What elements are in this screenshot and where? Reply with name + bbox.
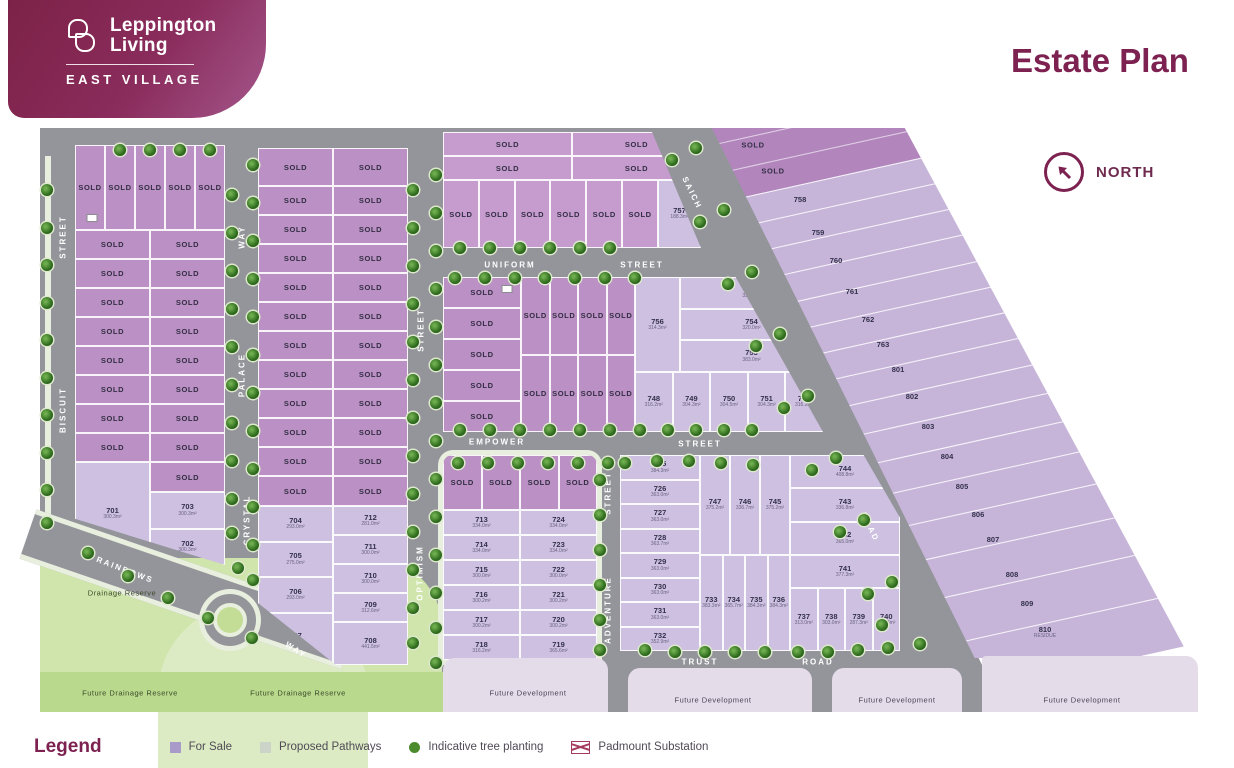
tree-icon [407, 564, 419, 576]
legend-title: Legend [34, 736, 102, 758]
tree-icon [247, 539, 259, 551]
tree-icon [247, 463, 259, 475]
lot-sold[interactable]: SOLD [150, 433, 225, 462]
page-title: Estate Plan [1005, 42, 1195, 80]
lot-745[interactable]: 745375.2m² [760, 455, 790, 555]
lot-804[interactable]: 804 [941, 453, 954, 461]
lot-718[interactable]: 718316.2m² [443, 635, 520, 660]
lot-741[interactable]: 741377.3m² [790, 555, 900, 588]
lot-sold[interactable]: SOLD [333, 186, 408, 215]
lot-756[interactable]: 756314.3m² [635, 277, 680, 372]
tree-icon [514, 242, 526, 254]
lot-sold[interactable]: SOLD [258, 148, 333, 186]
brand-line2: Living [110, 36, 216, 56]
lot-sold[interactable]: SOLD [550, 180, 586, 248]
lot-710[interactable]: 710300.0m² [333, 564, 408, 593]
block-a: SOLDSOLDSOLDSOLDSOLD SOLDSOLD SOLDSOLD S… [75, 145, 225, 565]
future-development-3 [832, 668, 962, 712]
legend-padmount: Padmount Substation [571, 741, 708, 754]
lot-703[interactable]: 703300.3m² [150, 492, 225, 529]
lot-sold[interactable]: SOLD [258, 389, 333, 418]
lot-sold[interactable]: SOLD [135, 145, 165, 230]
tree-icon [430, 622, 442, 634]
lot-sold[interactable]: SOLD [333, 447, 408, 476]
lot-sold[interactable]: SOLD [607, 355, 636, 433]
lot-sold[interactable]: SOLD [105, 145, 135, 230]
lot-807[interactable]: 807 [987, 536, 1000, 544]
lot-743[interactable]: 743336.8m² [790, 488, 900, 521]
tree-icon [407, 260, 419, 272]
lot-712[interactable]: 712281.0m² [333, 506, 408, 535]
tree-icon [449, 272, 461, 284]
pathways-swatch-icon [260, 742, 271, 753]
tree-icon [594, 644, 606, 656]
logo-divider [66, 64, 194, 65]
lot-736[interactable]: 736384.3m² [768, 555, 791, 651]
lot-sold[interactable]: SOLD [586, 180, 622, 248]
tree-icon [430, 359, 442, 371]
legend: Legend For Sale Proposed Pathways Indica… [34, 736, 708, 758]
tree-icon [247, 501, 259, 513]
tree-icon [747, 459, 759, 471]
tree-icon [822, 646, 834, 658]
future-drainage-label: Future Drainage Reserve [250, 689, 346, 698]
block-f: 725384.3m²726363.0m²727363.0m²728363.7m²… [620, 455, 900, 651]
tree-icon [247, 235, 259, 247]
lot-708[interactable]: 708441.5m² [333, 622, 408, 665]
tree-icon [574, 424, 586, 436]
tree-icon [41, 447, 53, 459]
lot-sold[interactable]: SOLD [258, 360, 333, 389]
tree-icon [876, 619, 888, 631]
lot-sold[interactable]: SOLD [258, 273, 333, 302]
tree-icon [629, 272, 641, 284]
tree-icon [886, 576, 898, 588]
lot-722[interactable]: 722300.0m² [520, 560, 597, 585]
lot-sold[interactable]: SOLD [75, 404, 150, 433]
tree-icon [430, 397, 442, 409]
lot-sold[interactable]: SOLD [333, 331, 408, 360]
tree-icon [407, 637, 419, 649]
tree-icon [430, 321, 442, 333]
tree-icon [509, 272, 521, 284]
tree-icon [512, 457, 524, 469]
tree-icon [594, 509, 606, 521]
street-label-uniform: UNIFORM [484, 261, 535, 270]
street-label-empower: EMPOWER [469, 438, 525, 447]
tree-icon [662, 424, 674, 436]
lot-806[interactable]: 806 [972, 511, 985, 519]
tree-icon [802, 390, 814, 402]
future-development-label: Future Development [675, 696, 752, 705]
block-b: SOLDSOLD SOLDSOLD SOLDSOLD SOLDSOLD SOLD… [258, 148, 408, 665]
tree-icon [569, 272, 581, 284]
tree-icon [482, 457, 494, 469]
legend-for-sale: For Sale [170, 741, 232, 753]
tree-icon [226, 493, 238, 505]
tree-icon [114, 144, 126, 156]
tree-icon [882, 642, 894, 654]
street-label-biscuit: BISCUIT [59, 387, 68, 433]
lot-sold[interactable]: SOLD [333, 273, 408, 302]
tree-icon [759, 646, 771, 658]
lot-sold[interactable]: SOLD [258, 215, 333, 244]
street-label-uniform: STREET [620, 261, 664, 270]
lot-706[interactable]: 706293.0m² [258, 577, 333, 613]
tree-icon [806, 464, 818, 476]
lot-sold[interactable]: SOLD [165, 145, 195, 230]
future-development-2 [628, 668, 812, 712]
lot-sold[interactable]: SOLD [75, 346, 150, 375]
estate-plan-page: Leppington Living EAST VILLAGE Estate Pl… [0, 0, 1234, 768]
tree-icon [639, 644, 651, 656]
lot-748[interactable]: 748316.2m² [635, 372, 673, 432]
lot-732[interactable]: 732352.9m² [620, 627, 700, 652]
tree-icon [750, 340, 762, 352]
tree-icon [604, 424, 616, 436]
legend-label: Padmount Substation [598, 741, 708, 753]
tree-icon [572, 457, 584, 469]
lot-sold[interactable]: SOLD [195, 145, 225, 230]
legend-label: Proposed Pathways [279, 741, 381, 753]
for-sale-swatch-icon [170, 742, 181, 753]
tree-icon [247, 574, 259, 586]
street-label-trust-road: ROAD [802, 658, 834, 667]
lot-735[interactable]: 735384.3m² [745, 555, 768, 651]
tree-icon [232, 562, 244, 574]
lot-sold[interactable]: SOLD [622, 180, 658, 248]
tree-icon [41, 409, 53, 421]
legend-label: Indicative tree planting [428, 741, 543, 753]
tree-icon [604, 242, 616, 254]
legend-label: For Sale [189, 741, 232, 753]
tree-icon [247, 197, 259, 209]
tree-icon [690, 142, 702, 154]
tree-icon [82, 547, 94, 559]
tree-icon [204, 144, 216, 156]
lot-sold[interactable]: SOLD [258, 302, 333, 331]
tree-icon [594, 544, 606, 556]
lot-723[interactable]: 723334.0m² [520, 535, 597, 560]
legend-tree-planting: Indicative tree planting [409, 741, 543, 753]
lot-801[interactable]: 801 [892, 366, 905, 374]
tree-icon [226, 189, 238, 201]
lot-726[interactable]: 726363.0m² [620, 480, 700, 505]
future-development-label: Future Development [1044, 696, 1121, 705]
tree-icon [41, 484, 53, 496]
leppington-leaf-icon [66, 16, 100, 56]
future-drainage-label: Future Drainage Reserve [82, 689, 178, 698]
lot-716[interactable]: 716300.2m² [443, 585, 520, 610]
tree-icon [484, 424, 496, 436]
lot-738[interactable]: 738303.0m² [818, 588, 846, 651]
tree-icon [174, 144, 186, 156]
tree-icon [718, 204, 730, 216]
tree-icon [669, 646, 681, 658]
tree-icon [778, 402, 790, 414]
tree-icon [683, 455, 695, 467]
tree-icon [407, 412, 419, 424]
brand-logo: Leppington Living EAST VILLAGE [8, 0, 266, 118]
tree-icon [202, 612, 214, 624]
tree-icon [430, 657, 442, 669]
tree-icon [544, 424, 556, 436]
lot-sold[interactable]: SOLD [150, 288, 225, 317]
estate-map: SOLDSOLDSOLDSOLDSOLD SOLDSOLD SOLDSOLD S… [40, 128, 1200, 712]
lot-763[interactable]: 763 [877, 341, 890, 349]
lot-sold[interactable]: SOLD [443, 339, 521, 370]
tree-icon [247, 425, 259, 437]
future-development-1 [443, 658, 608, 712]
tree-icon [452, 457, 464, 469]
lot-802[interactable]: 802 [906, 393, 919, 401]
tree-icon [41, 517, 53, 529]
lot-711[interactable]: 711300.0m² [333, 535, 408, 564]
lot-717[interactable]: 717300.2m² [443, 610, 520, 635]
lot-sold[interactable]: SOLD [521, 355, 550, 433]
tree-icon [574, 242, 586, 254]
tree-icon [430, 511, 442, 523]
tree-icon [247, 387, 259, 399]
tree-icon [41, 222, 53, 234]
tree-icon [430, 207, 442, 219]
lot-734[interactable]: 734365.7m² [723, 555, 746, 651]
tree-icon [162, 592, 174, 604]
tree-icon [407, 602, 419, 614]
tree-icon [722, 278, 734, 290]
tree-icon [41, 184, 53, 196]
lot-737[interactable]: 737313.0m² [790, 588, 818, 651]
lot-709[interactable]: 709312.6m² [333, 593, 408, 622]
tree-icon [430, 587, 442, 599]
tree-icon [122, 570, 134, 582]
lot-728[interactable]: 728363.7m² [620, 529, 700, 554]
lot-sold[interactable]: SOLD [258, 418, 333, 447]
street-label-palace: PALACE [238, 353, 247, 397]
lot-sold[interactable]: SOLD [150, 462, 225, 492]
lot-810[interactable]: 810RESIDUE [1034, 626, 1056, 640]
tree-icon [699, 646, 711, 658]
lot-sold[interactable]: SOLD [258, 476, 333, 506]
tree-icon [430, 435, 442, 447]
tree-icon [544, 242, 556, 254]
lot-704[interactable]: 704293.0m² [258, 506, 333, 542]
tree-icon [407, 222, 419, 234]
lot-733[interactable]: 733383.3m² [700, 555, 723, 651]
lot-747[interactable]: 747375.2m² [700, 455, 730, 555]
tree-icon [594, 474, 606, 486]
tree-icon [407, 374, 419, 386]
lot-sold[interactable]: SOLD [741, 141, 764, 150]
tree-icon [852, 644, 864, 656]
brand-line1: Leppington [110, 16, 216, 36]
lot-sold[interactable]: SOLD [333, 360, 408, 389]
tree-icon [774, 328, 786, 340]
lot-742[interactable]: 742365.0m² [790, 522, 900, 555]
lot-729[interactable]: 729363.0m² [620, 553, 700, 578]
lot-sold[interactable]: SOLD [761, 167, 784, 176]
lot-sold[interactable]: SOLD [550, 277, 579, 355]
tree-icon [690, 424, 702, 436]
lot-sold[interactable]: SOLD [258, 186, 333, 215]
tree-icon [454, 424, 466, 436]
tree-icon [430, 473, 442, 485]
future-development-label: Future Development [490, 689, 567, 698]
lot-sold[interactable]: SOLD [550, 355, 579, 433]
tree-icon [226, 303, 238, 315]
tree-icon [792, 646, 804, 658]
lot-760[interactable]: 760 [830, 257, 843, 265]
tree-icon [247, 273, 259, 285]
lot-715[interactable]: 715300.0m² [443, 560, 520, 585]
legend-proposed-pathways: Proposed Pathways [260, 741, 381, 753]
lot-sold[interactable]: SOLD [150, 404, 225, 433]
lot-sold[interactable]: SOLD [75, 230, 150, 259]
tree-icon [599, 272, 611, 284]
tree-icon [407, 336, 419, 348]
street-label-trust: TRUST [682, 658, 719, 667]
tree-icon [41, 259, 53, 271]
lot-sold[interactable]: SOLD [515, 180, 551, 248]
lot-sold[interactable]: SOLD [443, 132, 572, 156]
tree-icon [718, 424, 730, 436]
lot-sold[interactable]: SOLD [521, 277, 550, 355]
lot-730[interactable]: 730363.0m² [620, 578, 700, 603]
tree-icon [430, 549, 442, 561]
tree-icon [226, 265, 238, 277]
lot-sold[interactable]: SOLD [75, 375, 150, 404]
lot-sold[interactable]: SOLD [333, 244, 408, 273]
padmount-substation-icon [87, 214, 98, 222]
lot-sold[interactable]: SOLD [150, 317, 225, 346]
tree-icon [746, 424, 758, 436]
lot-sold[interactable]: SOLD [258, 331, 333, 360]
street-label-empower: STREET [678, 440, 722, 449]
tree-icon [226, 455, 238, 467]
lot-803[interactable]: 803 [922, 423, 935, 431]
lot-sold[interactable]: SOLD [333, 389, 408, 418]
lot-sold[interactable]: SOLD [150, 230, 225, 259]
tree-icon [479, 272, 491, 284]
lot-727[interactable]: 727363.0m² [620, 504, 700, 529]
tree-icon [246, 632, 258, 644]
tree-icon [226, 341, 238, 353]
future-development-label: Future Development [859, 696, 936, 705]
tree-icon [834, 526, 846, 538]
lot-731[interactable]: 731363.0m² [620, 602, 700, 627]
lot-809[interactable]: 809 [1021, 600, 1034, 608]
lot-sold[interactable]: SOLD [150, 375, 225, 404]
tree-icon [226, 417, 238, 429]
tree-icon [407, 184, 419, 196]
tree-icon [594, 579, 606, 591]
lot-805[interactable]: 805 [956, 483, 969, 491]
lot-762[interactable]: 762 [862, 316, 875, 324]
tree-icon [407, 298, 419, 310]
street-label-palace-way: WAY [238, 225, 247, 249]
tree-icon [862, 588, 874, 600]
lot-sold[interactable]: SOLD [258, 447, 333, 476]
lot-sold[interactable]: SOLD [443, 308, 521, 339]
lot-714[interactable]: 714334.0m² [443, 535, 520, 560]
tree-icon [830, 452, 842, 464]
lot-sold[interactable]: SOLD [75, 433, 150, 462]
tree-icon [41, 297, 53, 309]
lot-sold[interactable]: SOLD [578, 355, 607, 433]
lot-713[interactable]: 713334.0m² [443, 510, 520, 535]
block-e: SOLDSOLDSOLDSOLD 713334.0m²714334.0m²715… [443, 455, 597, 660]
lot-758[interactable]: 758 [794, 196, 807, 204]
tree-icon [430, 283, 442, 295]
tree-icon [619, 457, 631, 469]
lot-sold[interactable]: SOLD [333, 215, 408, 244]
tree-icon [247, 349, 259, 361]
lot-724[interactable]: 724334.0m² [520, 510, 597, 535]
tree-icon [407, 488, 419, 500]
lot-sold[interactable]: SOLD [75, 317, 150, 346]
tree-icon [247, 311, 259, 323]
lot-sold[interactable]: SOLD [479, 180, 515, 248]
lot-sold[interactable]: SOLD [150, 346, 225, 375]
lot-sold[interactable]: SOLD [333, 148, 408, 186]
lot-808[interactable]: 808 [1006, 571, 1019, 579]
tree-icon [484, 242, 496, 254]
tree-icon [407, 526, 419, 538]
tree-icon [651, 455, 663, 467]
tree-icon [514, 424, 526, 436]
street-label-biscuit: STREET [59, 215, 68, 259]
lot-sold[interactable]: SOLD [443, 180, 479, 248]
lot-761[interactable]: 761 [846, 288, 859, 296]
tree-icon [144, 144, 156, 156]
tree-icon [430, 245, 442, 257]
tree-icon [247, 159, 259, 171]
lot-sold[interactable]: SOLD [75, 259, 150, 288]
lot-sold[interactable]: SOLD [578, 277, 607, 355]
tree-icon [542, 457, 554, 469]
lot-719[interactable]: 719365.6m² [520, 635, 597, 660]
drainage-reserve-label: Drainage Reserve [88, 589, 156, 598]
tree-icon [634, 424, 646, 436]
lot-sold[interactable]: SOLD [258, 244, 333, 273]
lot-sold[interactable]: SOLD [333, 418, 408, 447]
lot-721[interactable]: 721300.2m² [520, 585, 597, 610]
lot-705[interactable]: 705275.0m² [258, 542, 333, 578]
padmount-substation-icon [502, 285, 513, 293]
tree-icon [539, 272, 551, 284]
tree-icon [407, 450, 419, 462]
lot-sold[interactable]: SOLD [333, 476, 408, 506]
lot-720[interactable]: 720300.2m² [520, 610, 597, 635]
padmount-swatch-icon [571, 741, 590, 754]
lot-sold[interactable]: SOLD [333, 302, 408, 331]
lot-sold[interactable]: SOLD [607, 277, 636, 355]
lot-sold[interactable]: SOLD [443, 156, 572, 180]
lot-sold[interactable]: SOLD [443, 370, 521, 401]
lot-749[interactable]: 749304.3m² [673, 372, 711, 432]
tree-icon [454, 242, 466, 254]
lot-759[interactable]: 759 [812, 229, 825, 237]
tree-icon [226, 527, 238, 539]
tree-icon [914, 638, 926, 650]
tree-icon [594, 614, 606, 626]
brand-subtitle: EAST VILLAGE [66, 72, 266, 87]
lot-sold[interactable]: SOLD [75, 288, 150, 317]
lot-750[interactable]: 750304.5m² [710, 372, 748, 432]
tree-icon [746, 266, 758, 278]
tree-icon [666, 154, 678, 166]
lot-sold[interactable]: SOLD [150, 259, 225, 288]
